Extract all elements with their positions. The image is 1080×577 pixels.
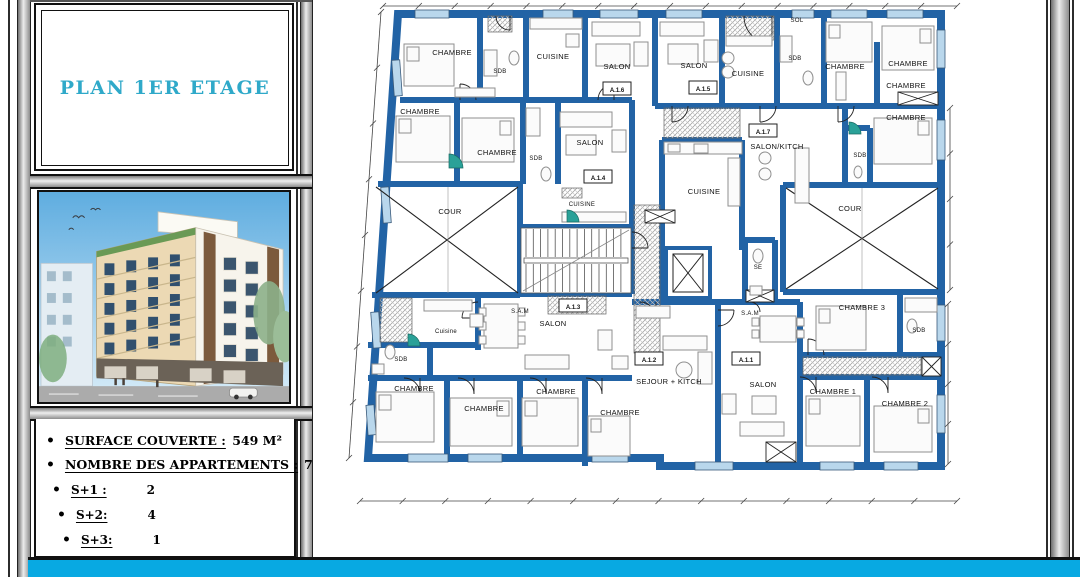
room-label: SDB — [493, 69, 506, 75]
floor-plan: CHAMBRESDBCUISINESALONSALONCUISINESOLSDB… — [0, 0, 1080, 577]
svg-text:A.1.7: A.1.7 — [756, 130, 771, 136]
room-label: SOL — [791, 18, 804, 24]
dimension-line-top — [380, 3, 960, 9]
room-label: SDB — [394, 357, 407, 363]
room-label: CUISINE — [732, 69, 765, 78]
elevator — [666, 248, 710, 298]
room-label: CHAMBRE 1 — [810, 387, 856, 396]
room-label: SALON — [604, 62, 631, 71]
apartment-tag: A.1.5 — [689, 81, 717, 94]
room-label: CHAMBRE — [886, 81, 926, 90]
room-label: CUISINE — [688, 187, 721, 196]
room-label: CHAMBRE — [477, 148, 517, 157]
room-label: S.A.M — [741, 311, 759, 317]
room-label: CHAMBRE 2 — [882, 399, 928, 408]
room-label: CHAMBRE — [888, 59, 928, 68]
room-label: SDB — [529, 156, 542, 162]
room-label: CUISINE — [537, 52, 570, 61]
room-label: CHAMBRE — [464, 404, 504, 413]
room-label: CHAMBRE — [886, 113, 926, 122]
svg-text:A.1.2: A.1.2 — [642, 358, 657, 364]
room-label: SDB — [853, 153, 866, 159]
room-label: CHAMBRE — [400, 107, 440, 116]
apartment-tag: A.1.2 — [635, 352, 663, 365]
svg-text:A.1.1: A.1.1 — [739, 358, 754, 364]
room-label: CUISINE — [569, 202, 595, 208]
room-label: SE — [754, 265, 763, 271]
room-label: SEJOUR + KITCH — [636, 377, 702, 386]
room-label: SALON — [750, 380, 777, 389]
apartment-tag: A.1.3 — [559, 299, 587, 312]
apartment-tag: A.1.7 — [749, 124, 777, 137]
room-label: CHAMBRE 3 — [839, 303, 885, 312]
room-label: CHAMBRE — [600, 408, 640, 417]
room-label: SDB — [788, 56, 801, 62]
apartment-tag: A.1.4 — [584, 170, 612, 183]
drawing-sheet: PLAN 1ER ETAGE — [0, 0, 1080, 577]
dimension-line-right — [947, 105, 953, 293]
room-label: SALON — [681, 61, 708, 70]
room-label: CHAMBRE — [825, 62, 865, 71]
room-label: SALON — [540, 319, 567, 328]
svg-text:A.1.6: A.1.6 — [610, 88, 625, 94]
staircase — [521, 228, 631, 293]
room-label: COUR — [838, 204, 862, 213]
dimension-line-bottom — [357, 498, 960, 504]
room-label: CHAMBRE — [536, 387, 576, 396]
room-label: S.A.M — [511, 309, 529, 315]
apartment-tag: A.1.6 — [603, 82, 631, 95]
room-label: CHAMBRE — [432, 48, 472, 57]
apartment-tag: A.1.1 — [732, 352, 760, 365]
room-label: Cuisine — [435, 329, 457, 335]
room-label: CHAMBRE — [394, 384, 434, 393]
dimension-line-right2 — [945, 301, 951, 467]
svg-text:A.1.3: A.1.3 — [566, 305, 581, 311]
room-label: SALON/KITCH — [750, 142, 803, 151]
room-label: SALON — [577, 138, 604, 147]
svg-text:A.1.5: A.1.5 — [696, 87, 711, 93]
room-label: SDB — [912, 328, 925, 334]
room-label: COUR — [438, 207, 462, 216]
svg-text:A.1.4: A.1.4 — [591, 176, 606, 182]
